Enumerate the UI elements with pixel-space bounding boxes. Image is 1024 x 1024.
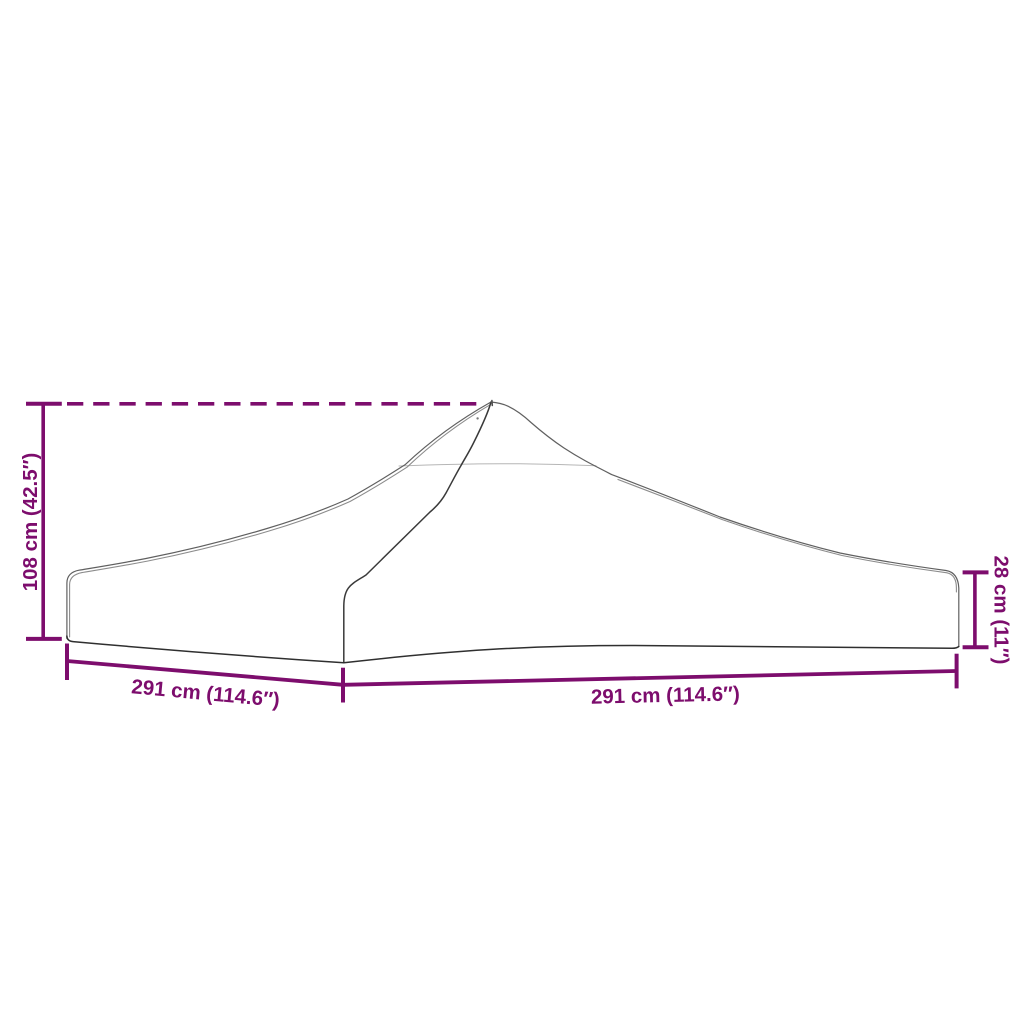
svg-text:291 cm (114.6″): 291 cm (114.6″) xyxy=(130,675,280,712)
svg-text:28 cm (11″): 28 cm (11″) xyxy=(990,556,1013,665)
svg-text:108 cm (42.5″): 108 cm (42.5″) xyxy=(19,453,42,592)
svg-text:291 cm (114.6″): 291 cm (114.6″) xyxy=(591,682,740,708)
